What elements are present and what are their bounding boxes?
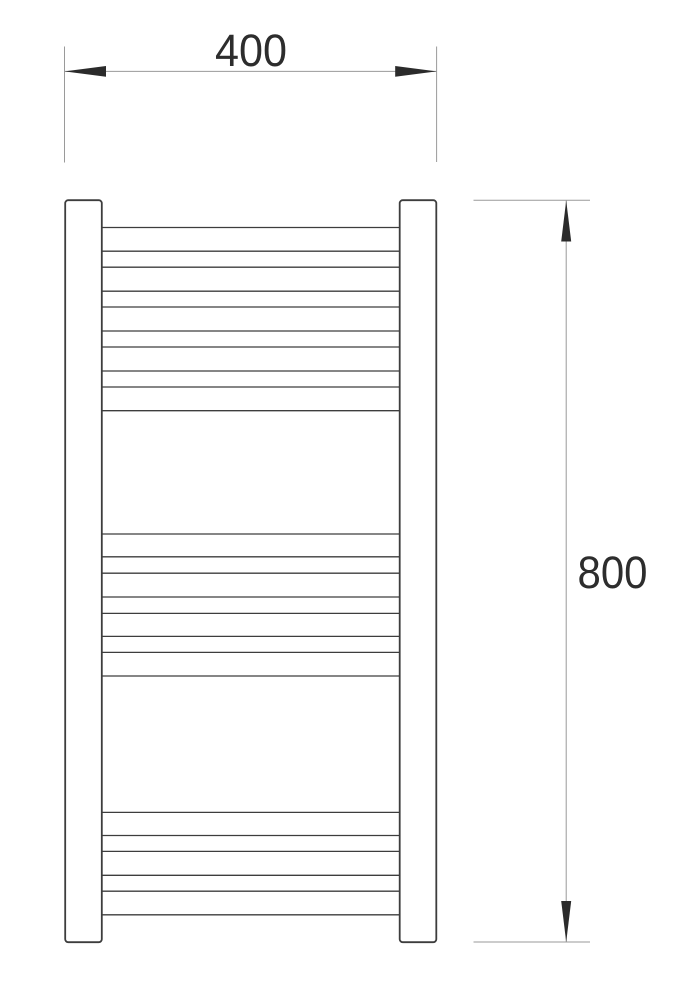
svg-text:400: 400 [215, 25, 287, 76]
svg-text:800: 800 [578, 547, 648, 598]
